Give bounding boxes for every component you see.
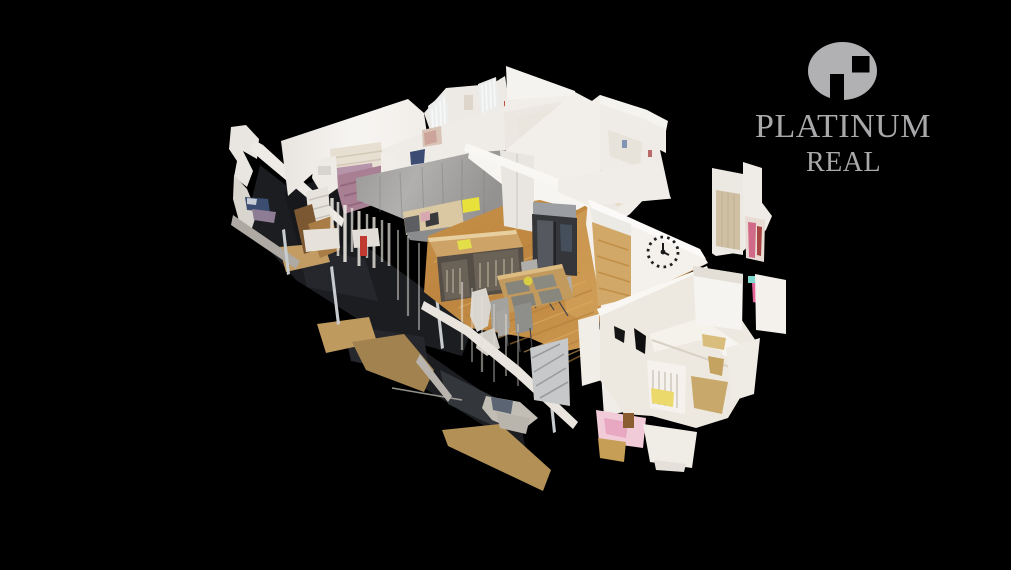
- svg-text:PLATINUM: PLATINUM: [755, 108, 931, 145]
- svg-text:REAL: REAL: [806, 147, 881, 178]
